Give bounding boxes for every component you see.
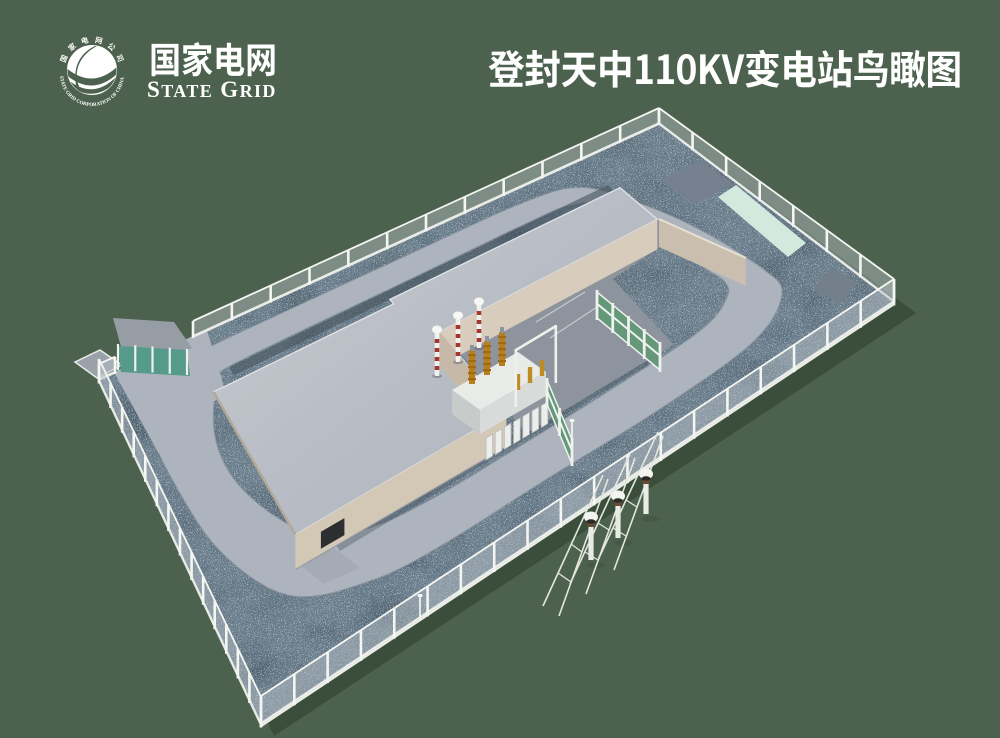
svg-text:STATE GRID: STATE GRID xyxy=(147,77,277,102)
